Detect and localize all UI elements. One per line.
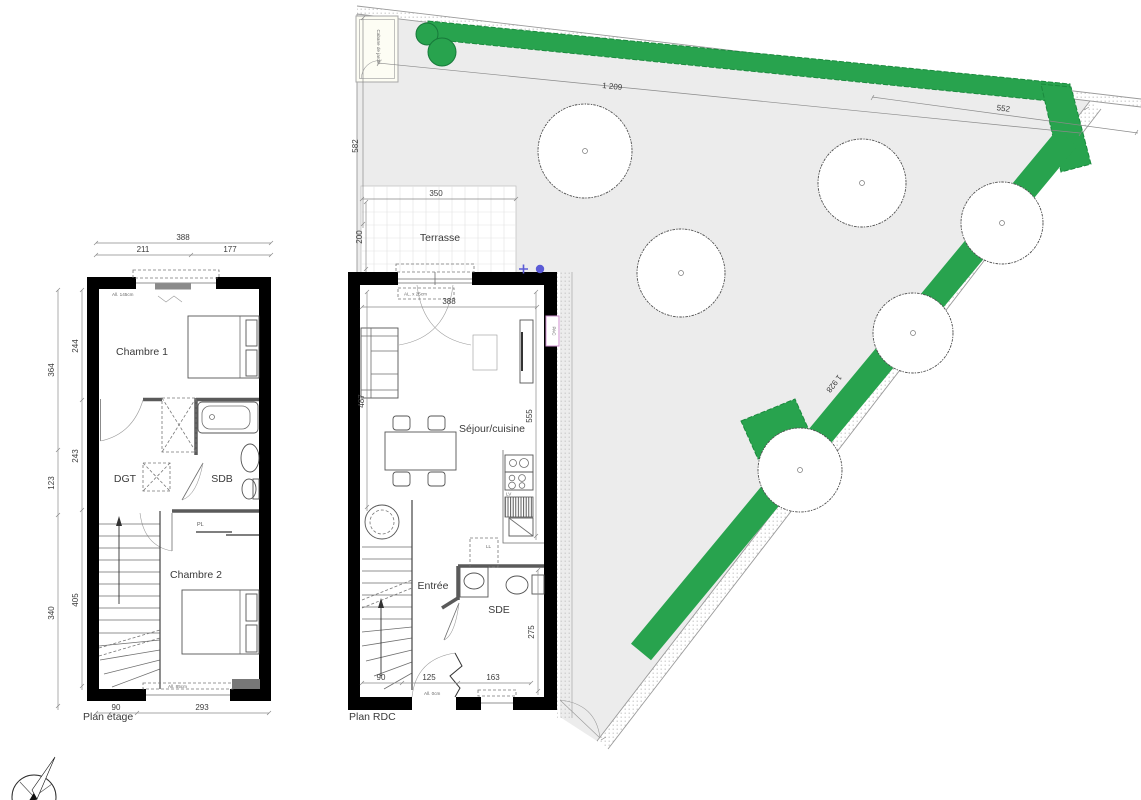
tree-3 xyxy=(637,229,725,317)
room-sde-label: SDE xyxy=(488,604,510,616)
room-sejour-label: Séjour/cuisine xyxy=(459,423,525,435)
dim-right: 552 xyxy=(996,103,1011,114)
room-sdb-label: SDB xyxy=(211,473,233,485)
site-plan-svg: Terrasse 350 200 Cabane de jardin xyxy=(0,0,1141,800)
plan-etage: All. 145cm xyxy=(47,233,273,723)
sde-window-opening xyxy=(481,697,513,710)
etage-bottom-cabinet xyxy=(232,679,260,689)
front-door-opening xyxy=(412,697,456,710)
etage-dim-outer-1: 123 xyxy=(47,476,56,490)
etage-dim-inner-2: 405 xyxy=(71,593,80,607)
tree-6 xyxy=(758,428,842,512)
etage-floor xyxy=(87,277,271,701)
etage-top-window-label: All. 145cm xyxy=(112,292,134,297)
pac-label: PAC xyxy=(552,326,557,336)
etage-bottom-window-label: All. 85cm xyxy=(168,684,187,689)
terrasse-depth-dim: 200 xyxy=(355,230,364,244)
compass-needle-light xyxy=(32,757,55,799)
pl-label: PL xyxy=(197,522,204,528)
etage-dim-inner-left-line xyxy=(80,288,84,690)
etage-dim-top2-line xyxy=(94,253,273,257)
tree-1 xyxy=(538,104,632,198)
etage-top-window-panel xyxy=(155,284,191,290)
etage-dim-outer-left-line xyxy=(56,288,60,710)
dim-left: 582 xyxy=(351,139,360,153)
rdc-dim-sde: 275 xyxy=(527,625,536,639)
tree-4 xyxy=(961,182,1043,264)
room-chambre2-label: Chambre 2 xyxy=(170,569,222,581)
rdc-dim-top: 388 xyxy=(442,297,456,306)
floor-plan-page: Terrasse 350 200 Cabane de jardin xyxy=(0,0,1141,800)
etage-top-window-dash xyxy=(133,270,219,278)
bush-2 xyxy=(428,38,456,66)
blue-dot-marker xyxy=(536,265,544,273)
terrasse-width-dim: 350 xyxy=(429,189,443,198)
etage-dim-outer-2: 340 xyxy=(47,606,56,620)
rdc-dim-bottom-1: 125 xyxy=(422,673,436,682)
shed-label: Cabane de jardin xyxy=(376,30,381,65)
laundry-label: LL xyxy=(486,544,492,549)
etage-dim-total: 388 xyxy=(176,233,190,242)
rdc-dim-right: 555 xyxy=(525,409,534,423)
rdc-dim-left: 487 xyxy=(357,394,366,408)
north-arrow xyxy=(12,757,56,800)
terrasse-label: Terrasse xyxy=(420,232,460,244)
tree-2 xyxy=(818,139,906,227)
etage-dim-inner-0: 244 xyxy=(71,339,80,353)
rdc-window-tag: AL. x 25cm xyxy=(404,292,427,297)
front-door-sill-label: All. 0cm xyxy=(424,691,441,696)
terrasse: Terrasse 350 200 xyxy=(355,186,518,276)
room-chambre1-label: Chambre 1 xyxy=(116,346,168,358)
terrasse-slab xyxy=(361,186,516,276)
kitchen-appliance-hatched xyxy=(505,497,533,517)
plan-rdc: AL. x 25cm LV xyxy=(348,264,559,723)
etage-title: Plan étage xyxy=(83,711,133,723)
etage-dim-left-half: 211 xyxy=(137,245,150,254)
etage-dim-outer-0: 364 xyxy=(47,363,56,377)
rdc-dim-bottom-0: 90 xyxy=(377,673,386,682)
garden-shed: Cabane de jardin xyxy=(356,16,398,82)
room-entree-label: Entrée xyxy=(418,580,449,592)
room-dgt-label: DGT xyxy=(114,473,137,485)
etage-dim-inner-1: 243 xyxy=(71,449,80,463)
rdc-dim-bottom-2: 163 xyxy=(486,673,500,682)
rdc-title: Plan RDC xyxy=(349,711,396,723)
tree-5 xyxy=(873,293,953,373)
etage-dim-bottom: 293 xyxy=(195,703,209,712)
rdc-floor xyxy=(348,272,557,710)
etage-dim-right-half: 177 xyxy=(223,245,237,254)
